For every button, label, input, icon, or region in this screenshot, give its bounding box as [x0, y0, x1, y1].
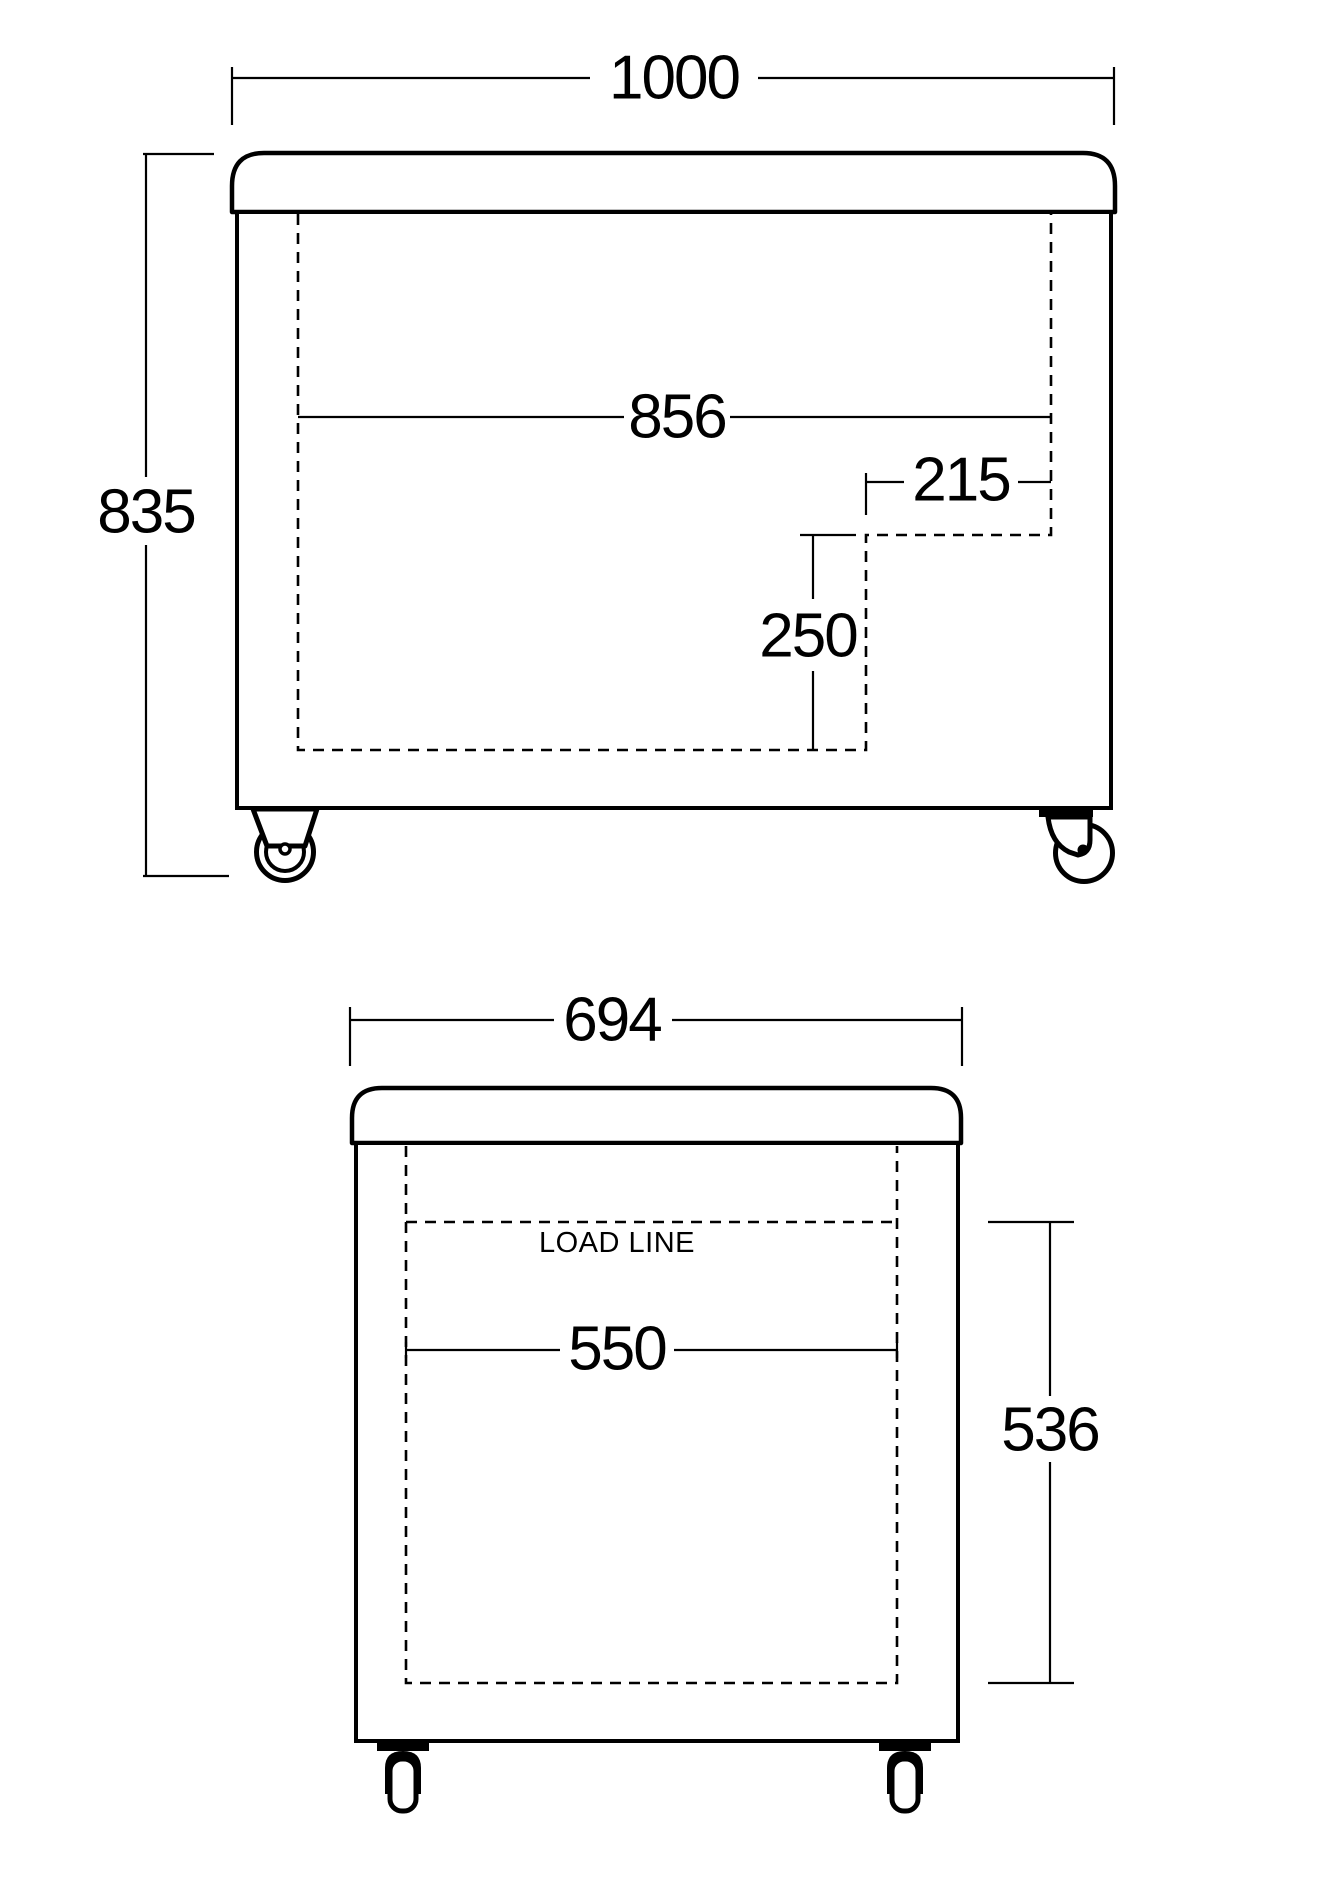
front-view: 1000 835 856 215 250: [92, 44, 1115, 882]
caster-plate-icon: [377, 1741, 429, 1751]
caster-hub-icon: [1078, 845, 1089, 856]
dim-front-width: 1000: [232, 44, 1114, 126]
caster-wheel-icon: [390, 1759, 416, 1811]
front-caster-left: [253, 809, 317, 881]
dim-side-inner-width-label: 550: [568, 1315, 666, 1384]
side-lid-outline: [352, 1088, 961, 1143]
dim-front-width-label: 1000: [609, 44, 739, 113]
caster-hub-icon: [280, 844, 290, 854]
dim-side-width-label: 694: [563, 986, 661, 1055]
dim-front-inner-width-label: 856: [628, 383, 725, 452]
dim-side-inner-height: 536: [988, 1222, 1106, 1683]
dim-front-notch-height-label: 250: [759, 602, 857, 671]
side-caster-right: [879, 1741, 931, 1811]
front-lid-outline: [232, 153, 1115, 212]
caster-plate-icon: [879, 1741, 931, 1751]
side-view: LOAD LINE 694 550 536: [350, 986, 1106, 1812]
dim-front-notch-width-label: 215: [912, 446, 1009, 515]
chest-freezer-dimension-drawing: 1000 835 856 215 250: [0, 0, 1327, 1893]
technical-drawing-page: 1000 835 856 215 250: [0, 0, 1327, 1893]
side-caster-left: [377, 1741, 429, 1811]
dim-side-inner-height-label: 536: [1001, 1396, 1098, 1465]
load-line-label: LOAD LINE: [539, 1227, 695, 1259]
caster-bracket-icon: [253, 809, 317, 846]
front-caster-right: [1039, 807, 1113, 882]
dim-side-width: 694: [350, 986, 962, 1067]
dim-front-height: 835: [92, 154, 229, 876]
caster-wheel-icon: [892, 1759, 918, 1811]
dim-front-height-label: 835: [97, 478, 194, 547]
